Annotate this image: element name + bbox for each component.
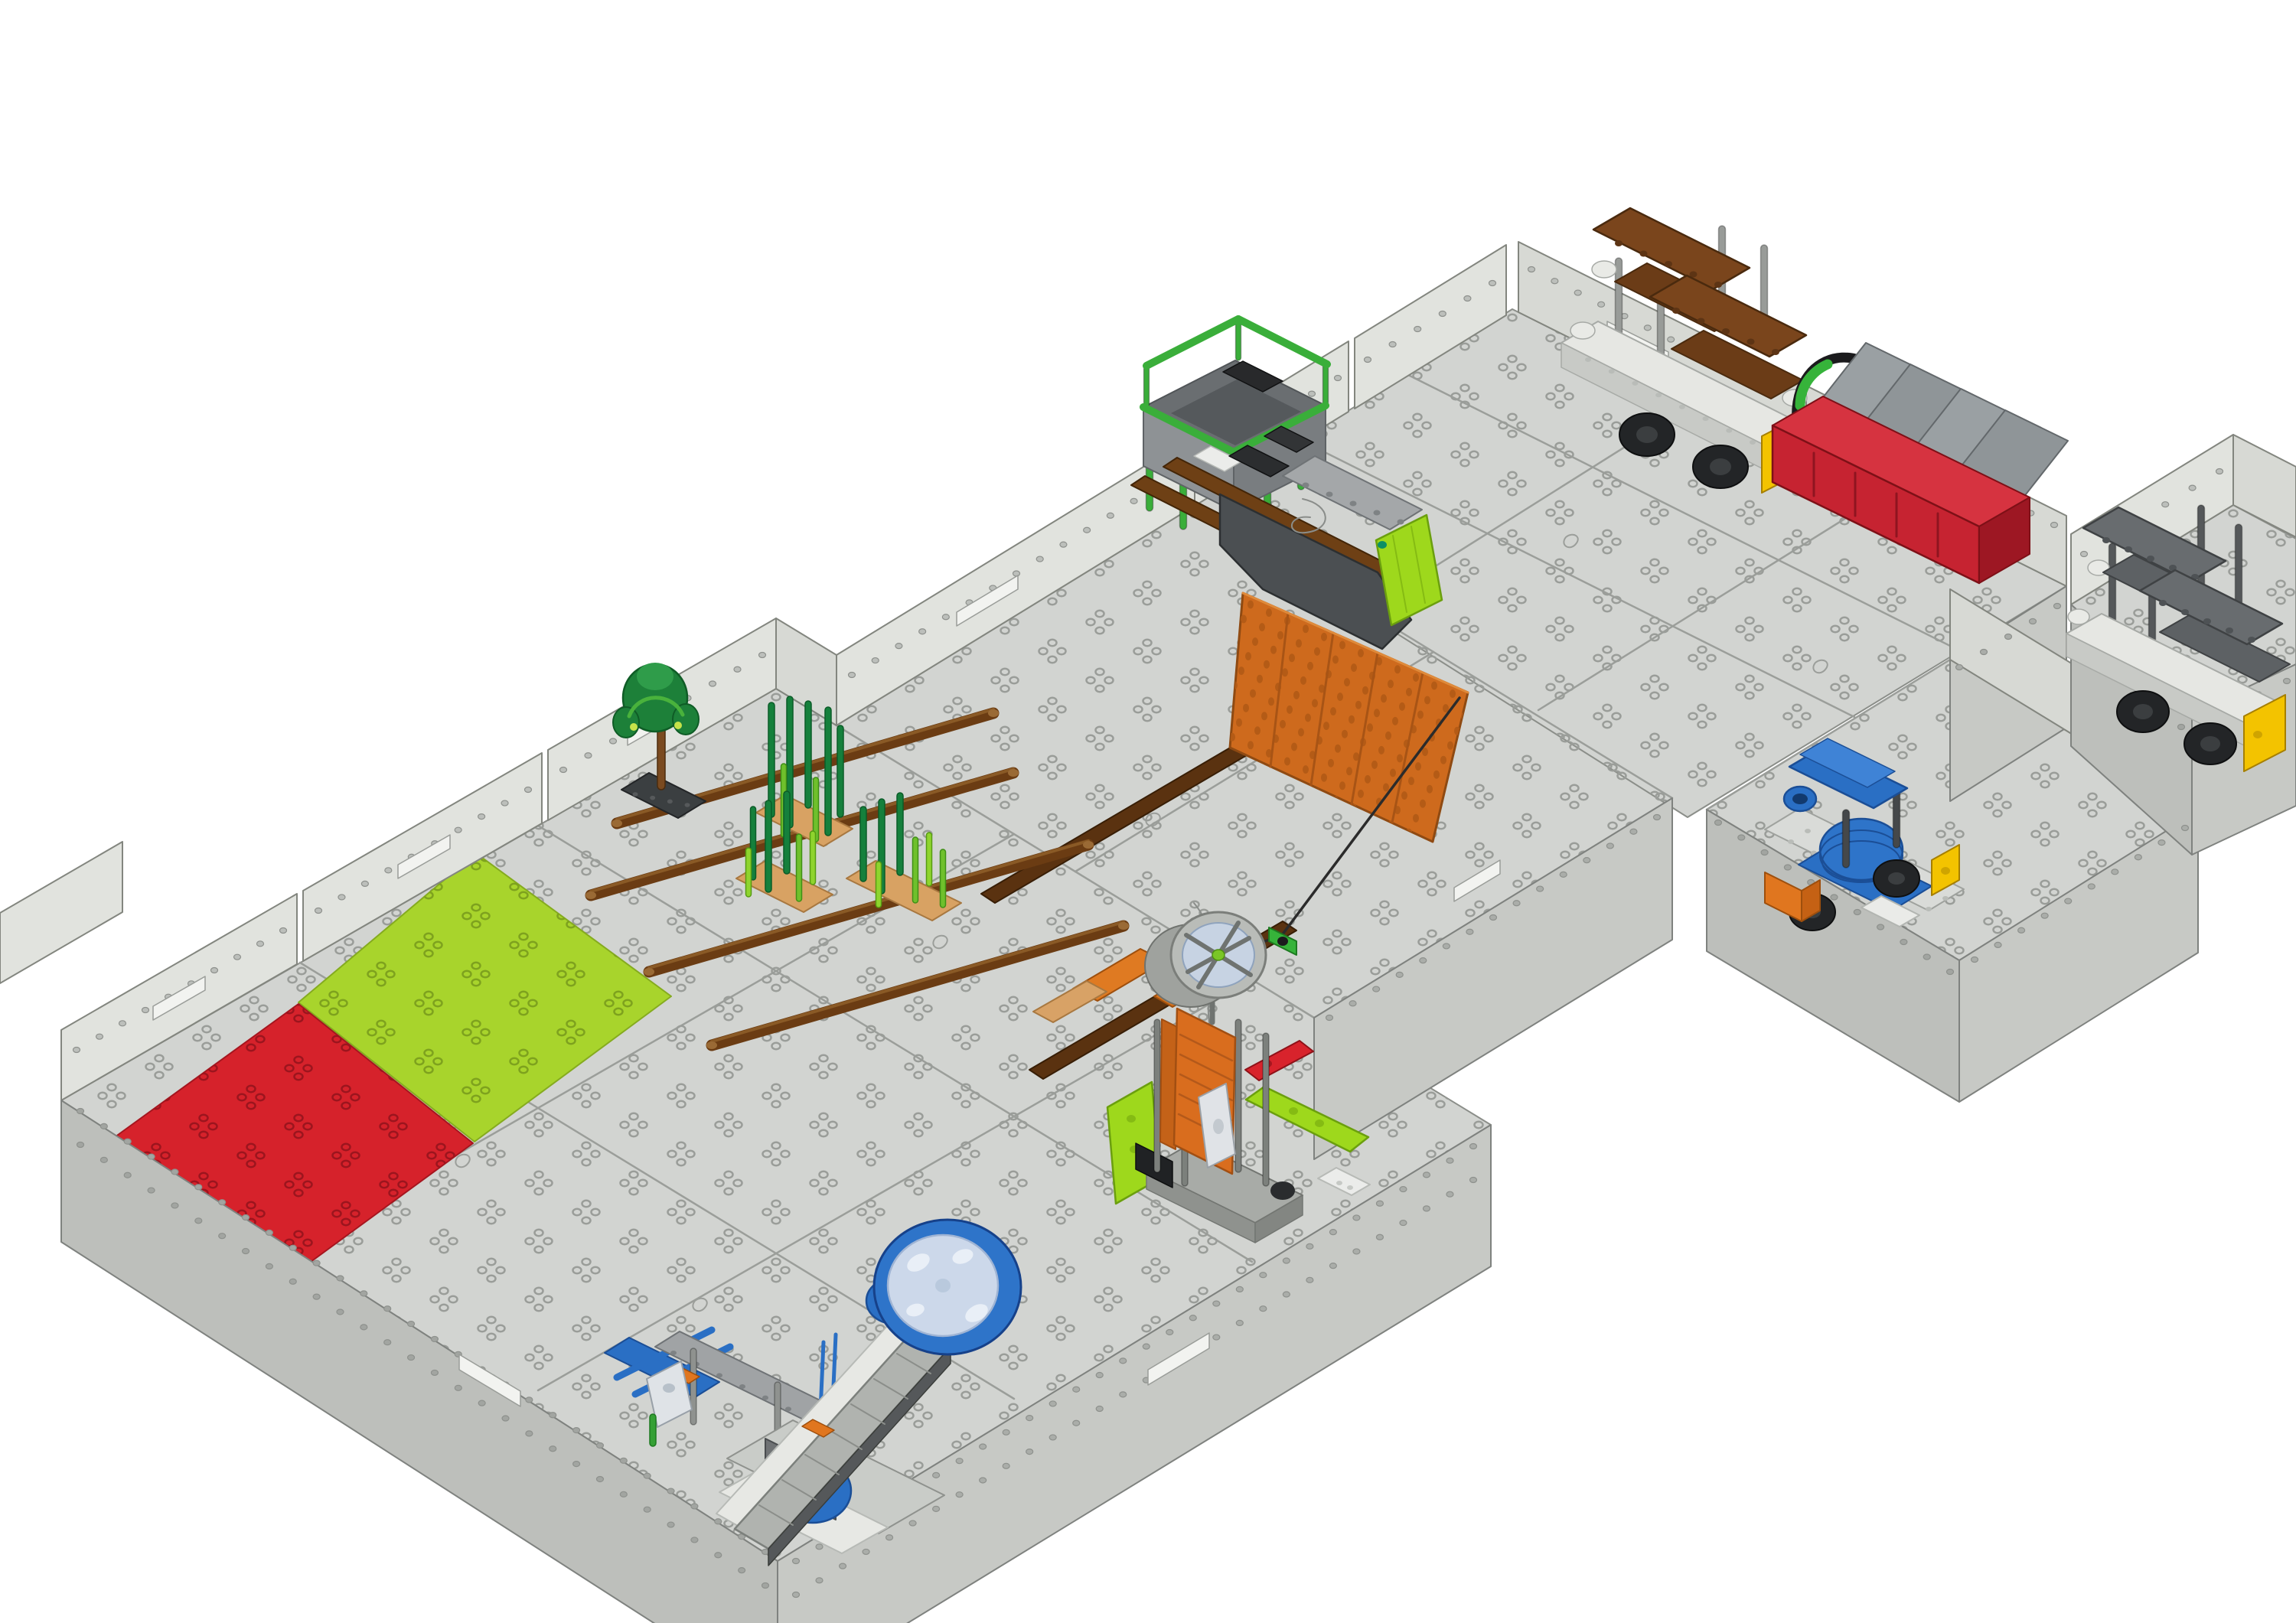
render-stage bbox=[0, 0, 2296, 1623]
scene-svg bbox=[0, 0, 2296, 1623]
